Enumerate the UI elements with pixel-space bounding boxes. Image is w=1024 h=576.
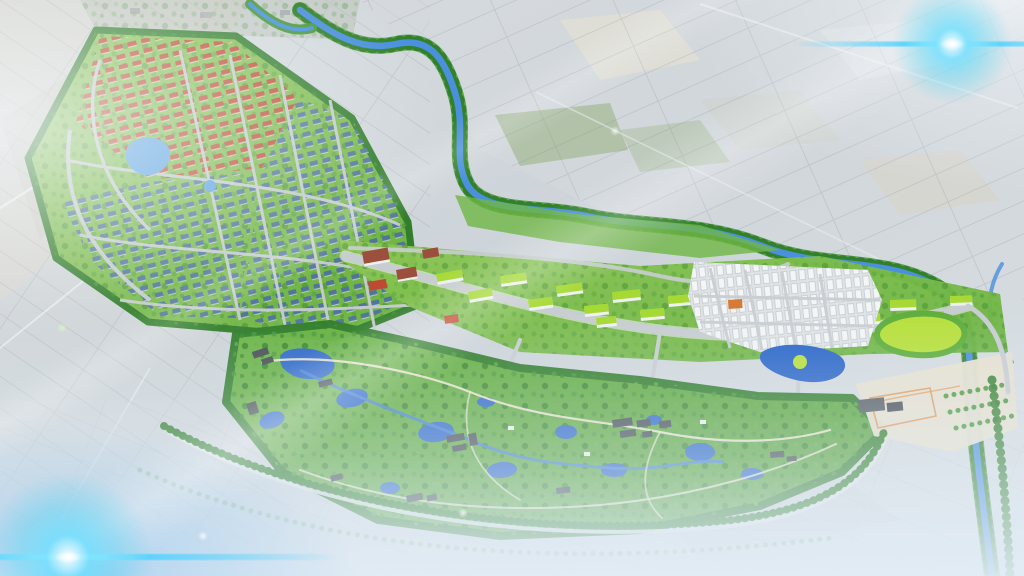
masterplan-render [0, 0, 1024, 576]
residential-pond-small [204, 180, 216, 192]
orange-accent-building [728, 299, 743, 309]
masterplan-screenshot [0, 0, 1024, 576]
